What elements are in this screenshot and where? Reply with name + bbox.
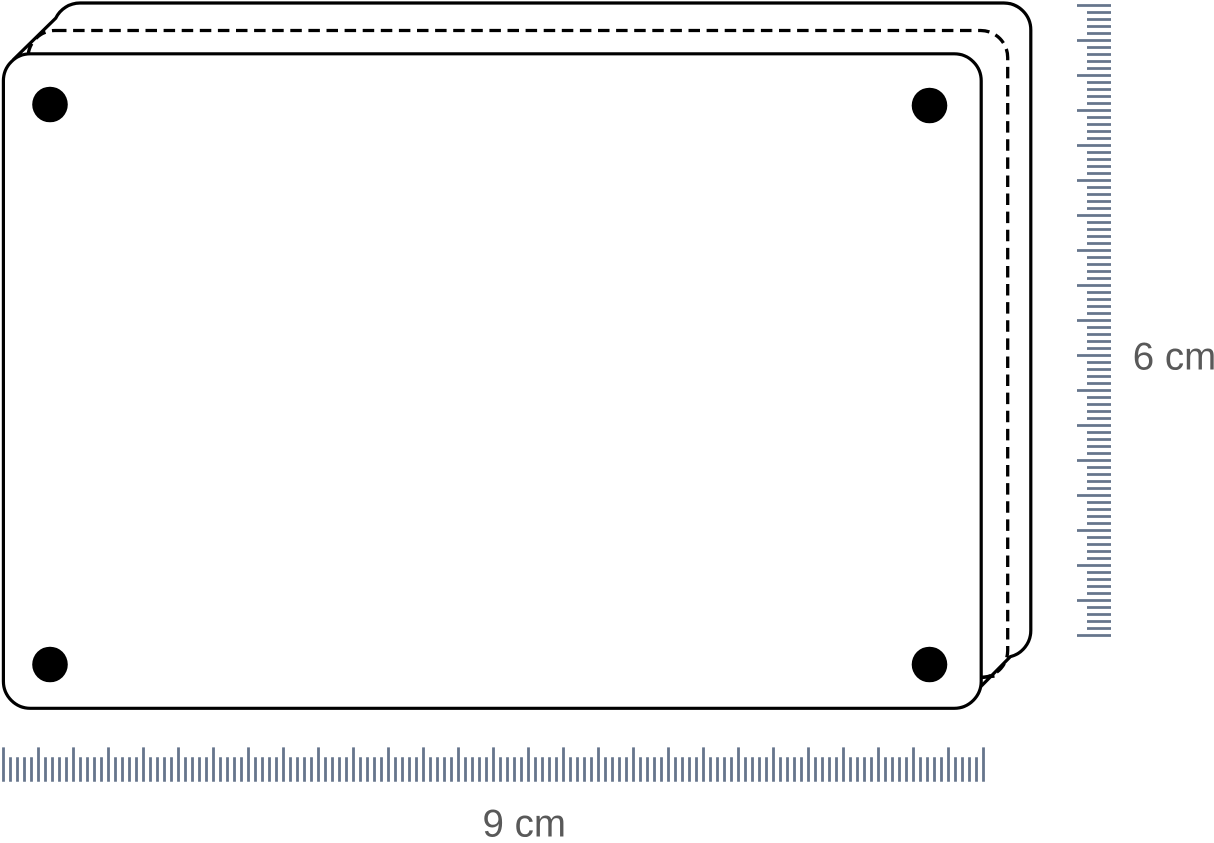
svg-text:9 cm: 9 cm xyxy=(483,802,566,838)
svg-text:6 cm: 6 cm xyxy=(1133,335,1214,378)
